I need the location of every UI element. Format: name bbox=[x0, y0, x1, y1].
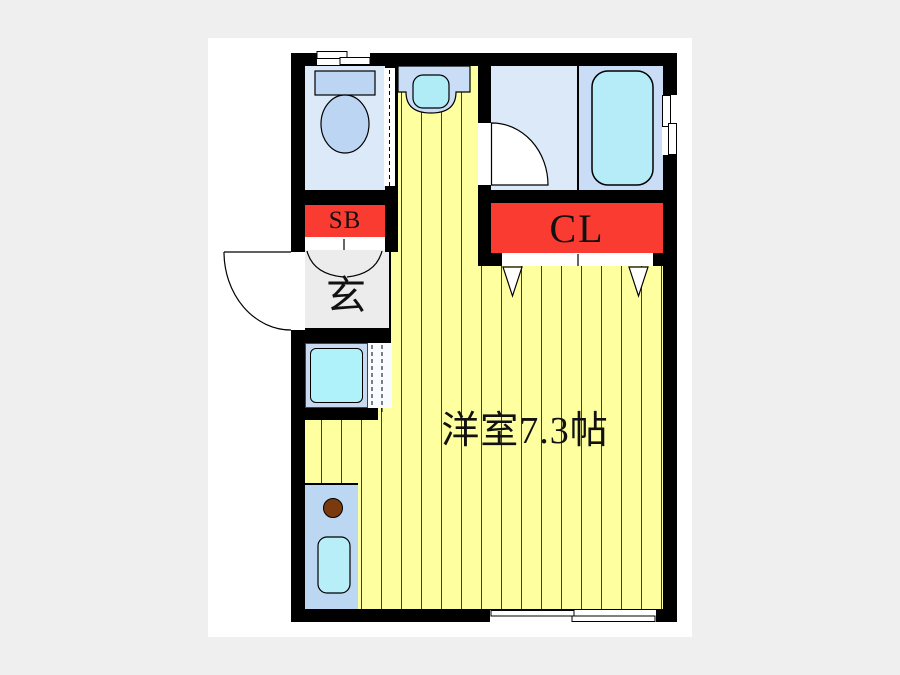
bathroom-washroom-area bbox=[491, 66, 577, 190]
washer-folding-door-strip bbox=[368, 343, 392, 408]
genkan-step-edge bbox=[389, 250, 391, 328]
toilet-sliding-door bbox=[384, 68, 395, 186]
entry-door-opening bbox=[291, 252, 305, 330]
closet: CL bbox=[491, 203, 663, 253]
shoe-box: SB bbox=[305, 205, 385, 237]
kitchen-counter bbox=[305, 483, 358, 609]
entrance-label: 玄 bbox=[318, 270, 374, 322]
shoe-box-door-track bbox=[305, 237, 385, 250]
closet-label: CL bbox=[549, 205, 604, 252]
wall-bottom bbox=[291, 609, 677, 622]
bathroom-door-opening bbox=[478, 123, 491, 185]
shoe-box-label: SB bbox=[329, 207, 362, 235]
wall-below-genkan bbox=[291, 328, 391, 343]
wall-top bbox=[291, 53, 677, 66]
wall-below-washer bbox=[291, 408, 378, 420]
closet-door-track bbox=[502, 253, 653, 266]
wall-below-toilet bbox=[291, 190, 398, 205]
wall-below-bathroom bbox=[478, 190, 677, 203]
washing-machine-icon bbox=[310, 348, 363, 403]
washing-machine-space bbox=[305, 343, 368, 408]
wall-right-of-shoebox bbox=[385, 205, 398, 252]
wall-closet-bottom-left bbox=[491, 253, 502, 266]
main-room-label: 洋室7.3帖 bbox=[370, 407, 680, 455]
bathroom-tub-area bbox=[577, 66, 663, 190]
toilet-room bbox=[305, 66, 385, 190]
wall-left-of-closet bbox=[478, 203, 491, 266]
wall-right bbox=[663, 53, 677, 622]
wall-closet-bottom-right bbox=[653, 253, 663, 266]
floorplan-page: SB CL bbox=[0, 0, 900, 675]
